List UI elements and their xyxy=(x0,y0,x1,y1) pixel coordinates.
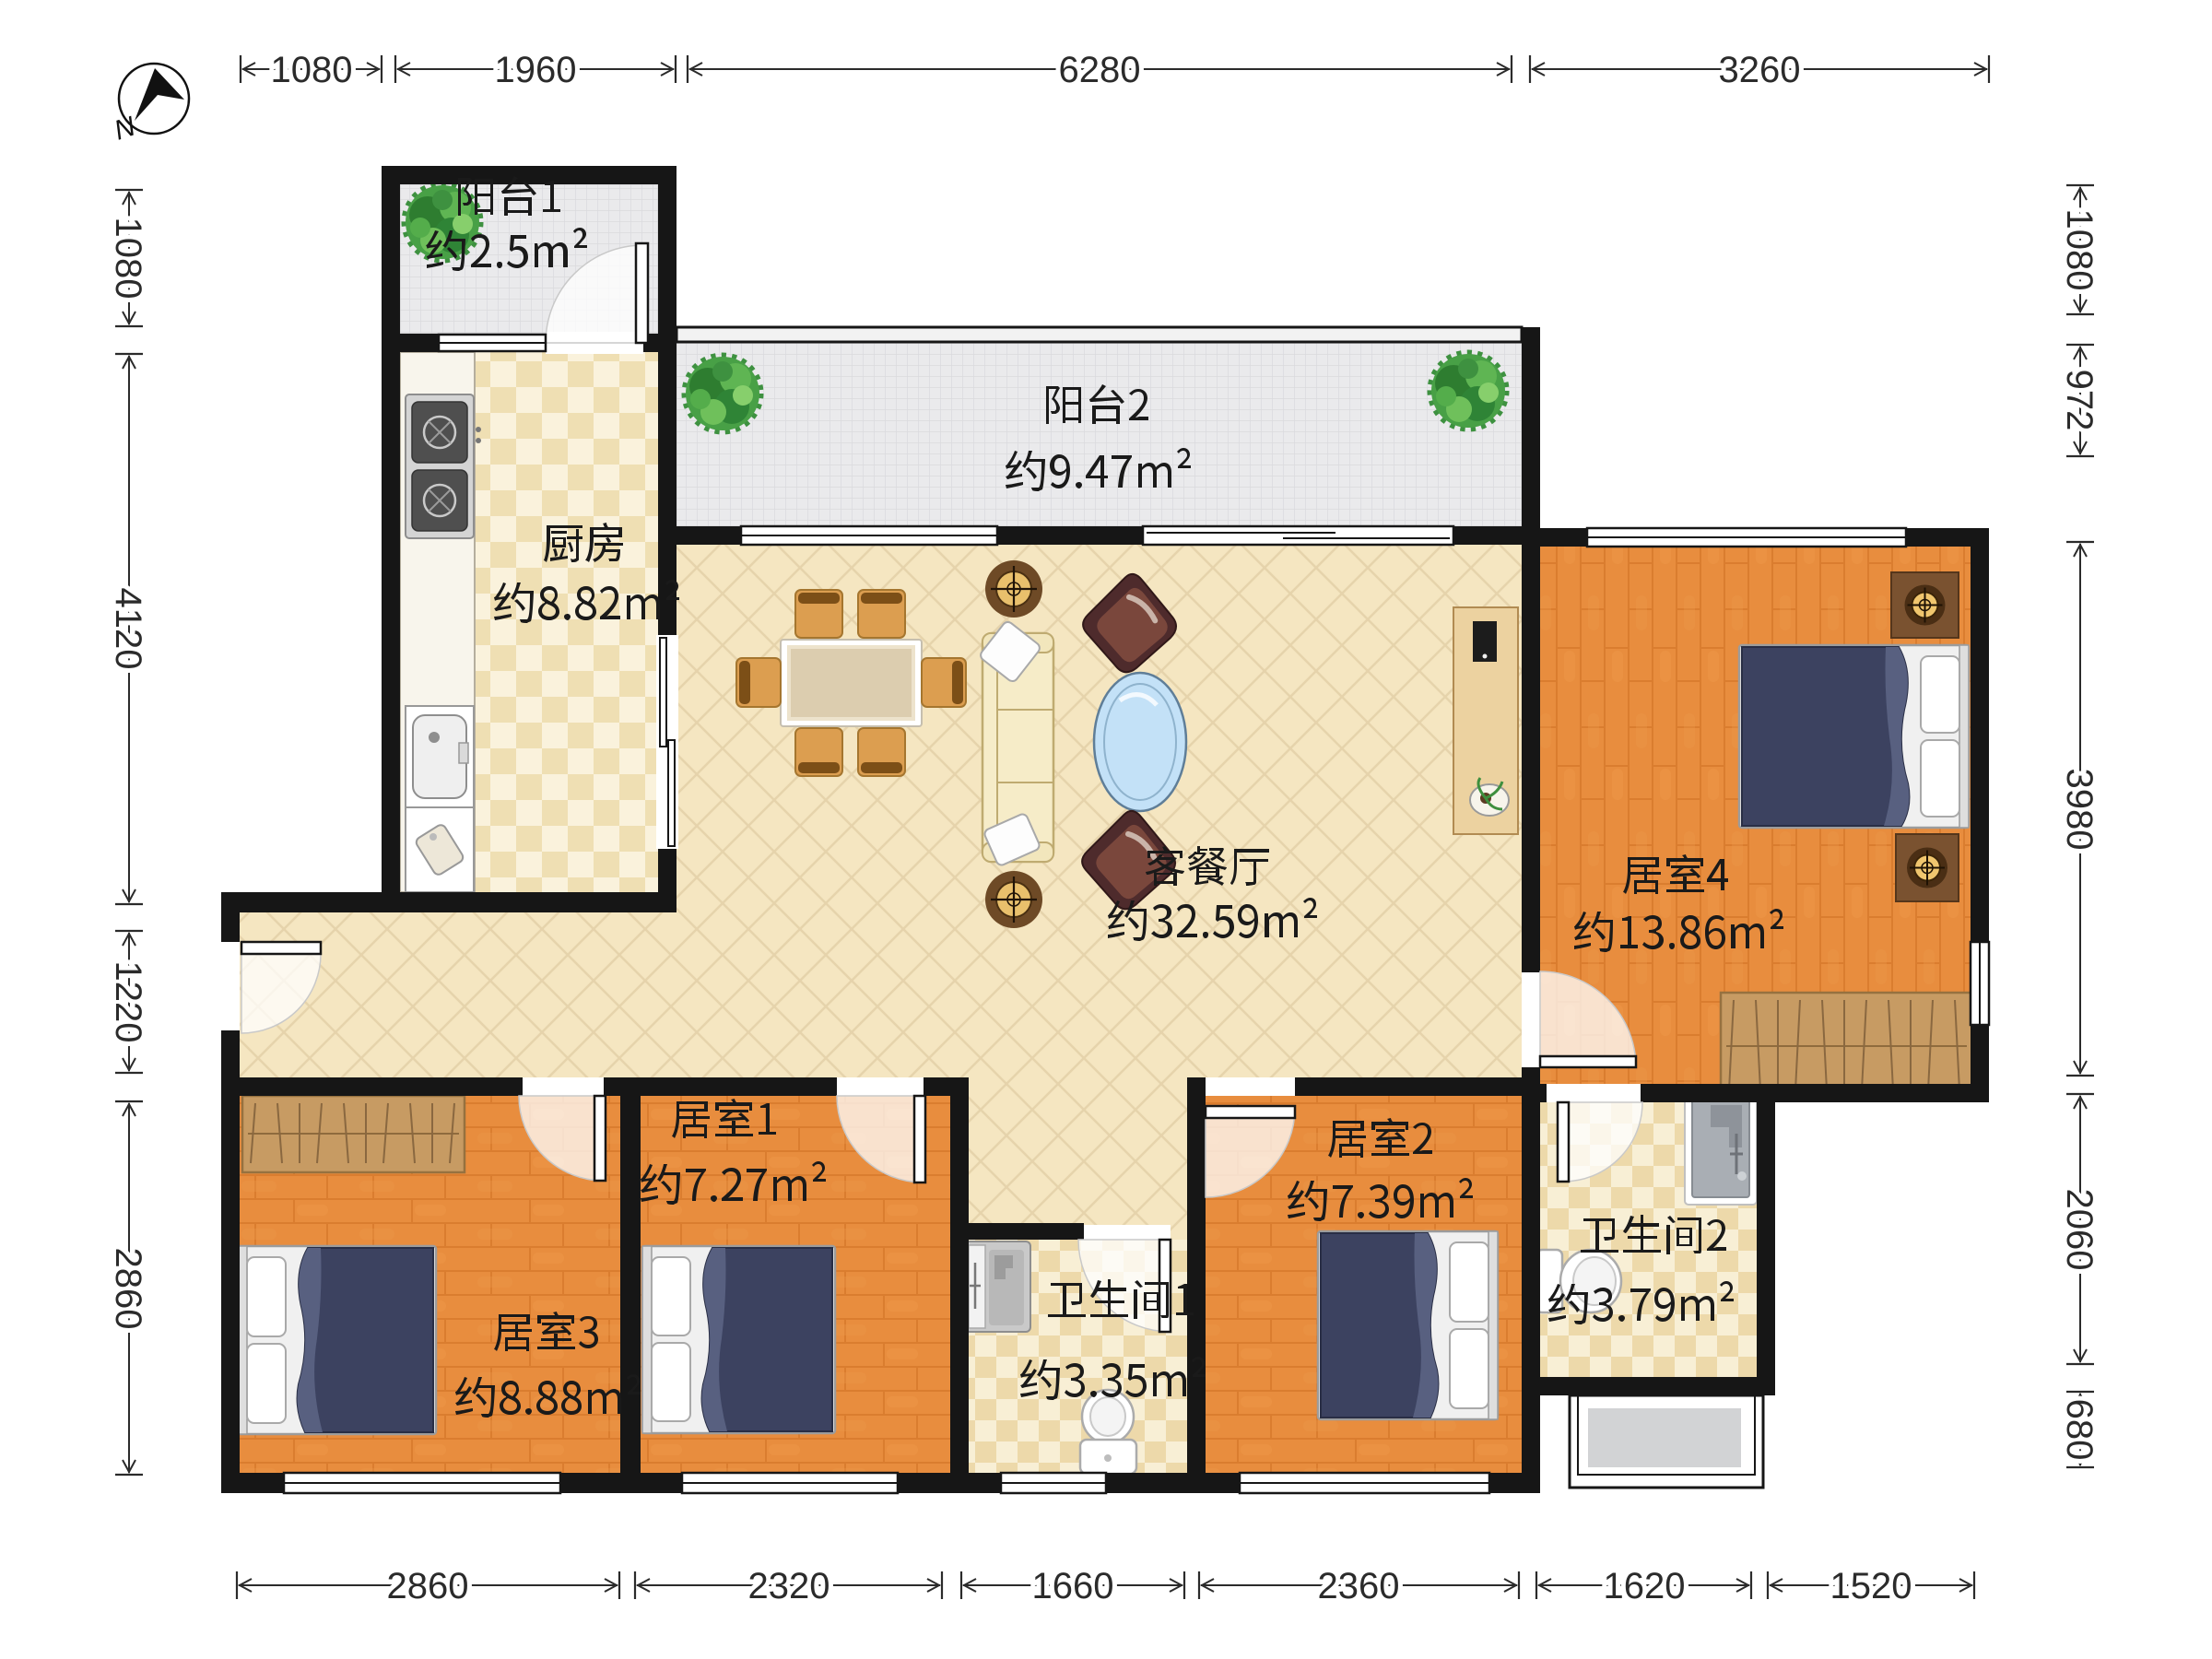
svg-text:1220: 1220 xyxy=(108,961,148,1043)
svg-text:680: 680 xyxy=(2059,1399,2100,1461)
svg-text:2860: 2860 xyxy=(108,1248,148,1330)
svg-text:3260: 3260 xyxy=(1719,50,1801,90)
svg-text:2360: 2360 xyxy=(1318,1566,1400,1606)
svg-text:1520: 1520 xyxy=(1830,1566,1912,1606)
svg-text:2060: 2060 xyxy=(2059,1189,2100,1271)
svg-text:1080: 1080 xyxy=(108,218,148,300)
svg-text:1080: 1080 xyxy=(2059,209,2100,291)
svg-text:N: N xyxy=(111,111,139,146)
svg-text:1080: 1080 xyxy=(271,50,353,90)
svg-text:1660: 1660 xyxy=(1032,1566,1114,1606)
svg-text:2320: 2320 xyxy=(748,1566,830,1606)
svg-text:2860: 2860 xyxy=(387,1566,469,1606)
svg-text:6280: 6280 xyxy=(1059,50,1141,90)
svg-text:3980: 3980 xyxy=(2059,769,2100,851)
svg-text:1960: 1960 xyxy=(495,50,577,90)
svg-text:1620: 1620 xyxy=(1604,1566,1686,1606)
svg-text:972: 972 xyxy=(2059,370,2100,431)
svg-text:4120: 4120 xyxy=(108,588,148,670)
